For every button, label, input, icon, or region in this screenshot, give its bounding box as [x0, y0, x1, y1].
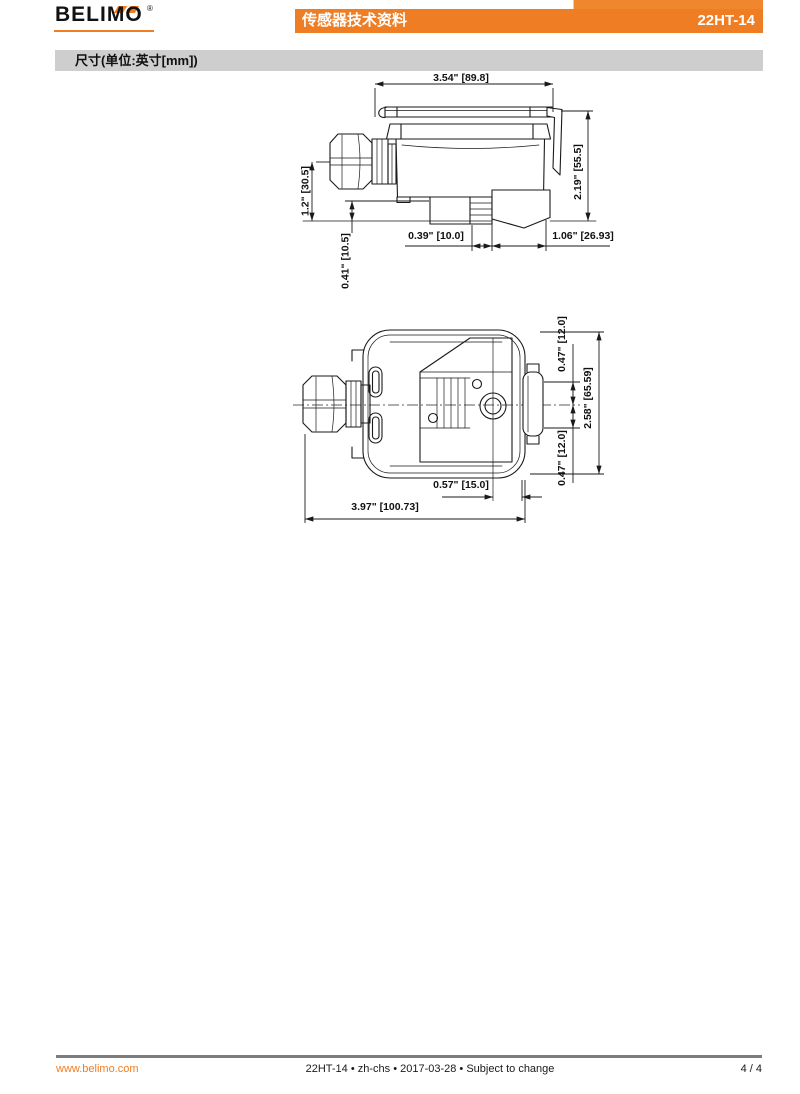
belimo-logo-text: BELIMO [55, 3, 143, 27]
section-header-dimensions: 尺寸(单位:英寸[mm]) [55, 50, 763, 71]
belimo-logo: BELIMO ® [54, 0, 214, 36]
registered-trademark-symbol: ® [147, 4, 153, 13]
product-code: 22HT-14 [295, 9, 763, 33]
dim-step-height: 0.41" [10.5] [340, 233, 352, 289]
sensor-housing-side-view [303, 107, 596, 228]
dim-offset-top: 0.47" [12.0] [556, 316, 568, 372]
dim-overall-width: 3.97" [100.73] [351, 501, 418, 513]
dim-width-top: 3.54" [89.8] [433, 72, 489, 84]
datasheet-page: BELIMO ® 传感器技术资料 22HT-14 尺寸(单位:英寸[mm]) [0, 0, 800, 1094]
logo-underline [54, 30, 154, 32]
side-view-drawing: 3.54" [89.8] 2.19" [55.5] 1.2" [30.5] 0.… [300, 72, 620, 294]
side-view-dimensions [312, 84, 610, 251]
sensor-housing-bottom-view [303, 330, 543, 478]
footer-page-number: 4 / 4 [702, 1063, 762, 1075]
dim-hole-offset: 0.57" [15.0] [433, 479, 489, 491]
dim-gland-center-height: 1.2" [30.5] [300, 166, 312, 216]
dim-height-right: 2.19" [55.5] [572, 144, 584, 200]
dim-offset-bottom: 0.47" [12.0] [556, 430, 568, 486]
dim-flange-width: 1.06" [26.93] [552, 230, 614, 242]
bottom-view-drawing: 0.47" [12.0] 0.47" [12.0] 2.58" [65.59] … [290, 298, 620, 530]
dim-neck-width: 0.39" [10.0] [408, 230, 464, 242]
footer-document-info: 22HT-14 • zh-chs • 2017-03-28 • Subject … [100, 1063, 760, 1075]
dim-overall-height: 2.58" [65.59] [582, 367, 594, 429]
footer-divider [56, 1055, 762, 1058]
